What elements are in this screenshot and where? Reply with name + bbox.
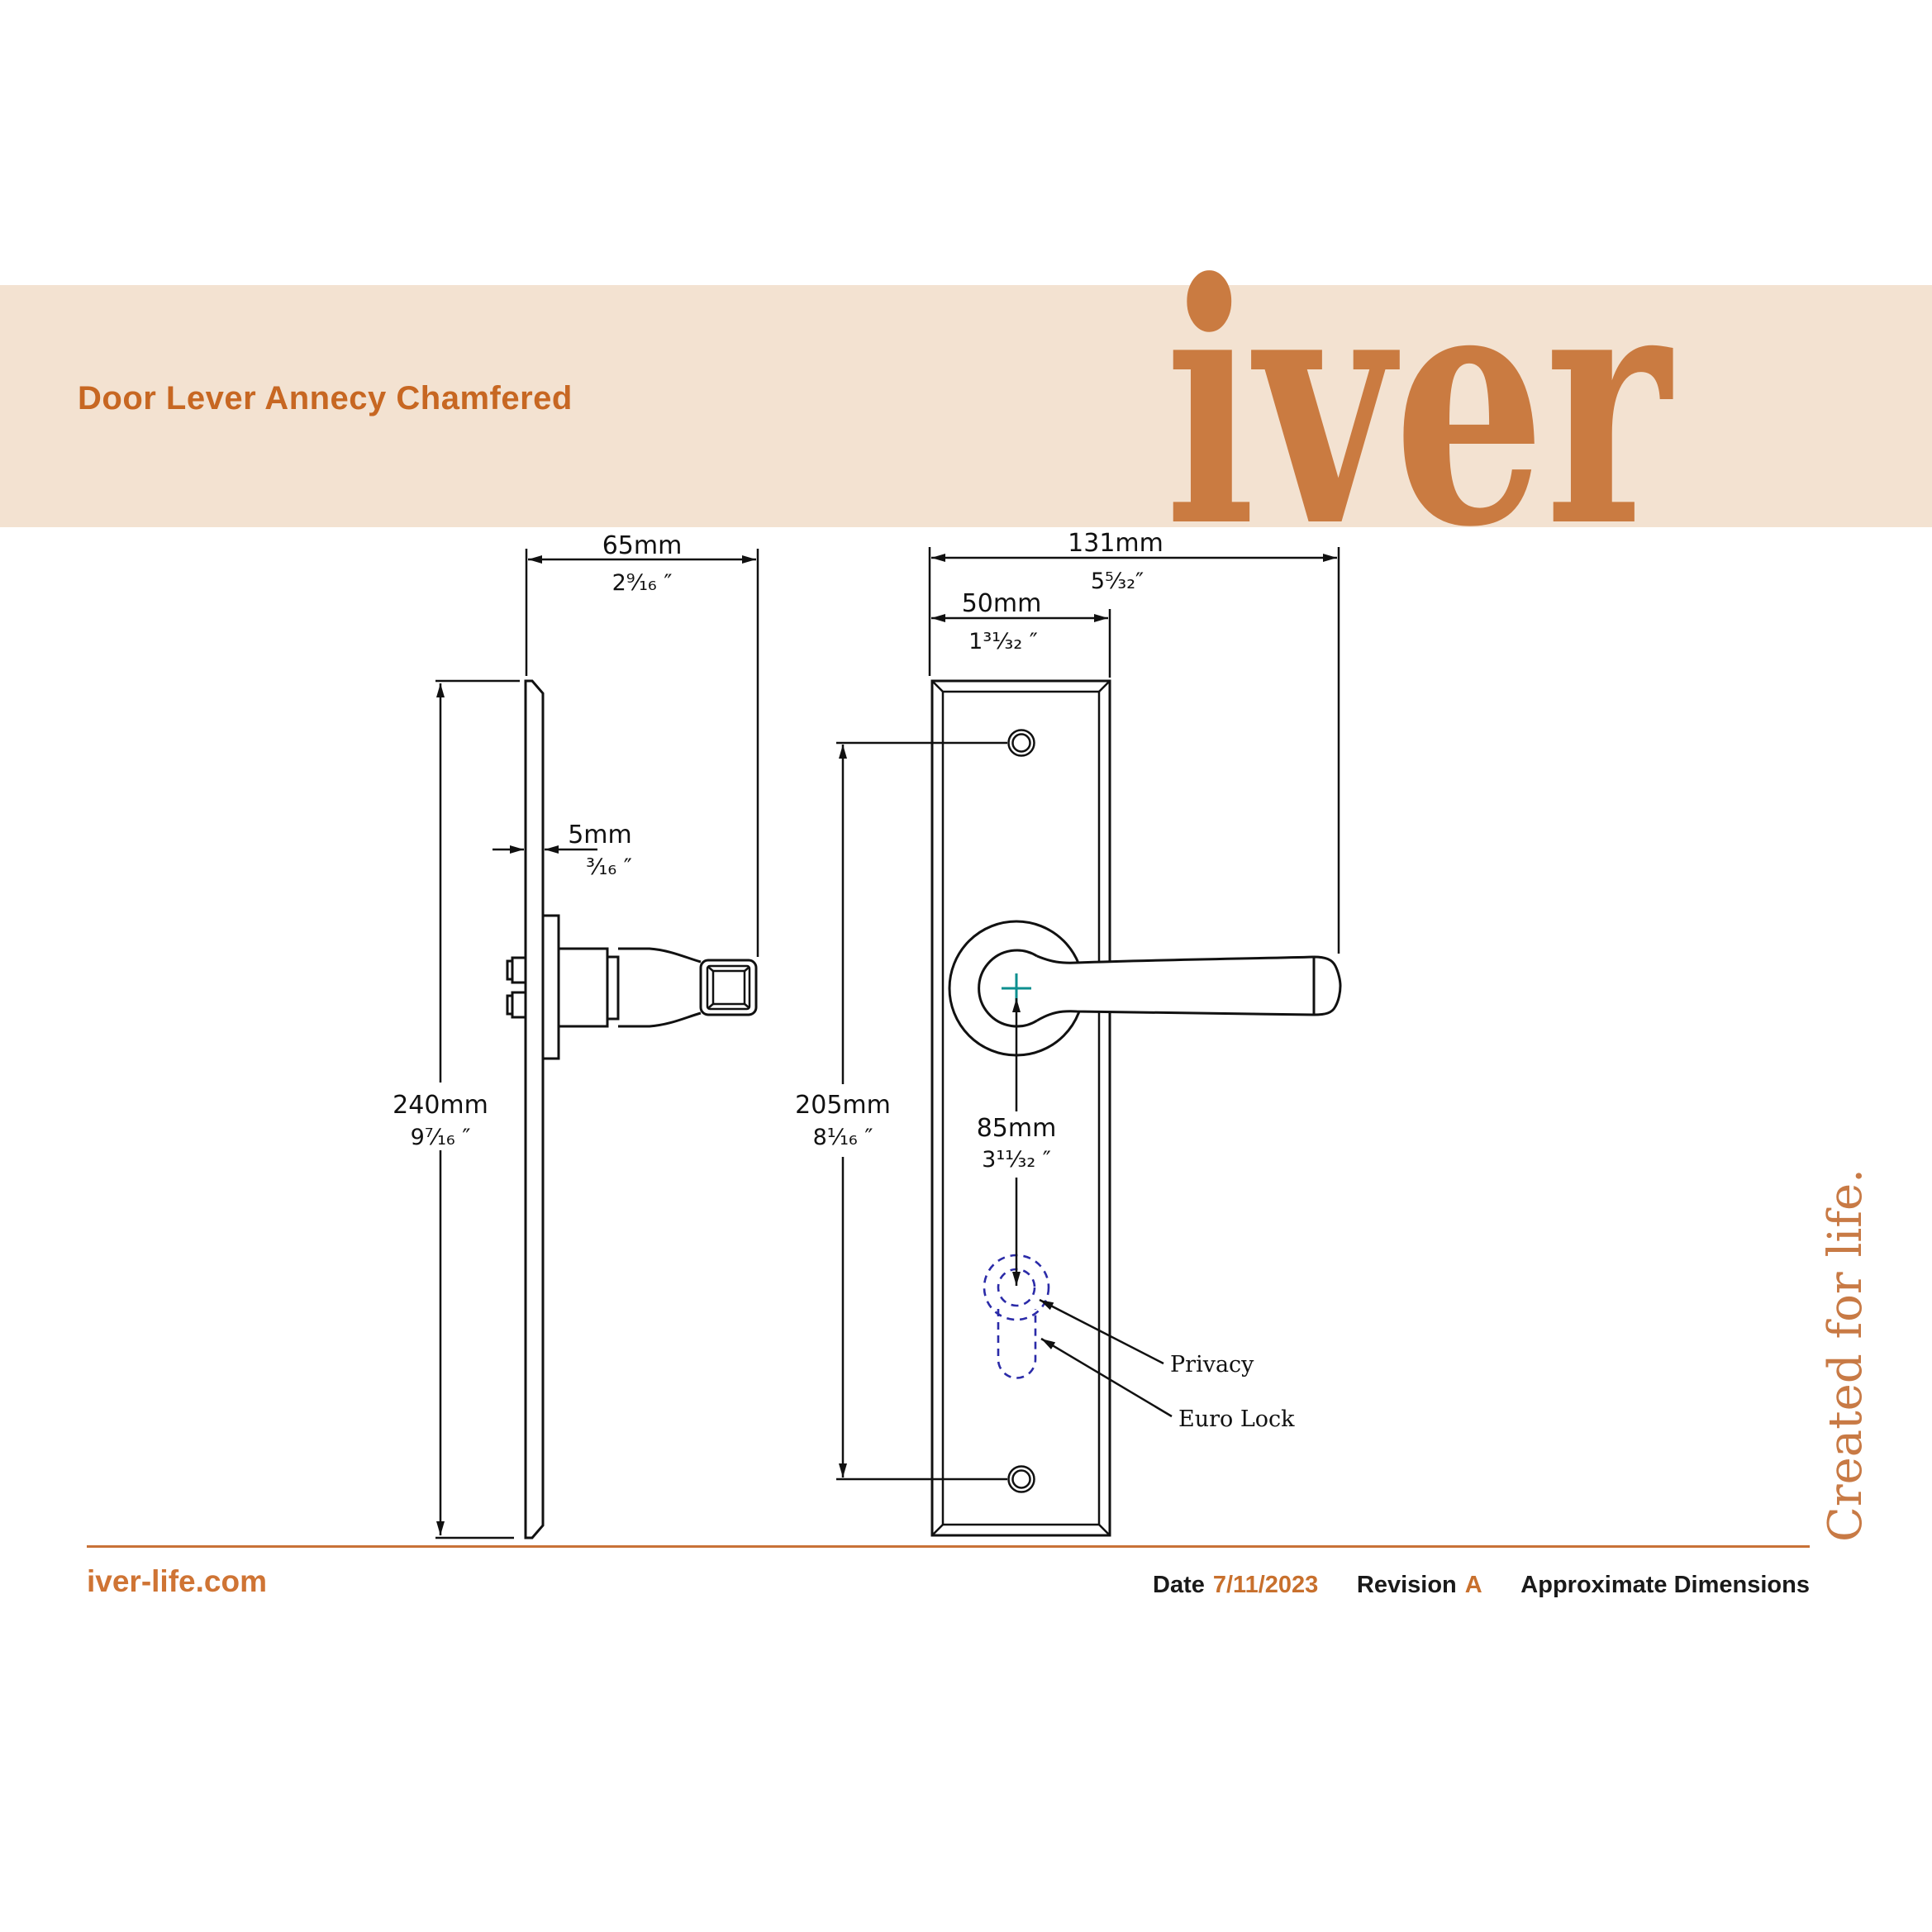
- dim-50mm-inch: 1³¹⁄₃₂ ″: [968, 629, 1038, 654]
- technical-drawing: 65mm 2⁹⁄₁₆ ″ 5mm ³⁄₁₆ ″ 240mm 9⁷⁄₁₆ ″ 13…: [0, 0, 1932, 1932]
- front-plate-outer: [932, 681, 1110, 1535]
- euro-lock-label: Euro Lock: [1178, 1406, 1295, 1432]
- privacy-leader-line: [1040, 1300, 1163, 1363]
- revision-value: A: [1465, 1572, 1482, 1598]
- side-view-dimensions: [435, 549, 758, 1538]
- fixing-lug-top-cap: [507, 961, 512, 979]
- euro-lock-leader-line: [1041, 1339, 1172, 1416]
- screw-hole-top-inner: [1013, 735, 1030, 752]
- dim-205mm-inch: 8¹⁄₁₆ ″: [813, 1125, 873, 1150]
- dim-131mm: 131mm: [1068, 529, 1163, 558]
- dim-85mm-inch: 3¹¹⁄₃₂ ″: [982, 1147, 1051, 1173]
- dim-240mm-inch: 9⁷⁄₁₆ ″: [411, 1125, 471, 1150]
- dim-131mm-inch: 5⁵⁄₃₂″: [1091, 569, 1144, 594]
- front-plate-inner: [943, 692, 1099, 1525]
- dim-85mm: 85mm: [977, 1114, 1057, 1143]
- side-hub: [559, 949, 607, 1026]
- dim-5mm-inch: ³⁄₁₆ ″: [586, 854, 632, 880]
- dim-50mm: 50mm: [962, 589, 1042, 618]
- side-plate-outline: [526, 681, 543, 1538]
- website-link[interactable]: iver-life.com: [87, 1564, 267, 1599]
- spec-sheet-page: Door Lever Annecy Chamfered iver Created…: [0, 0, 1932, 1932]
- dim-65mm-inch: 2⁹⁄₁₆ ″: [612, 570, 673, 596]
- privacy-label: Privacy: [1170, 1352, 1254, 1378]
- date-value: 7/11/2023: [1213, 1572, 1318, 1598]
- fixing-lug-top: [512, 958, 526, 983]
- side-rose-collar: [543, 916, 559, 1059]
- dim-65mm: 65mm: [602, 531, 683, 560]
- front-plate-corner-bevels: [932, 681, 1110, 1535]
- dimension-labels: 65mm 2⁹⁄₁₆ ″ 5mm ³⁄₁₆ ″ 240mm 9⁷⁄₁₆ ″ 13…: [393, 529, 1163, 1173]
- side-grip-top: [618, 949, 701, 962]
- approximate-dimensions-note: Approximate Dimensions: [1520, 1572, 1810, 1599]
- side-grip-bottom: [618, 1013, 701, 1026]
- dim-205mm: 205mm: [795, 1091, 891, 1120]
- callout-leaders: [1040, 1300, 1172, 1416]
- revision-field: RevisionA: [1357, 1572, 1482, 1599]
- euro-cylinder-slot-dashed: [998, 1309, 1035, 1378]
- dim-240mm: 240mm: [393, 1091, 488, 1120]
- side-knob-facets: [708, 967, 749, 1008]
- fixing-lug-bottom-cap: [507, 996, 512, 1014]
- revision-label: Revision: [1357, 1572, 1457, 1598]
- dim-5mm: 5mm: [568, 821, 632, 849]
- side-view-drawing: [507, 681, 756, 1538]
- callout-labels: Privacy Euro Lock: [1170, 1352, 1295, 1432]
- date-label: Date: [1153, 1572, 1205, 1598]
- side-knob-inner: [713, 971, 745, 1004]
- side-neck-ring: [607, 957, 618, 1019]
- footer-meta: Date7/11/2023 RevisionA Approximate Dime…: [1153, 1572, 1810, 1599]
- footer-divider: [87, 1545, 1810, 1548]
- date-field: Date7/11/2023: [1153, 1572, 1318, 1599]
- screw-hole-bottom-inner: [1013, 1471, 1030, 1488]
- fixing-lug-bottom: [512, 992, 526, 1017]
